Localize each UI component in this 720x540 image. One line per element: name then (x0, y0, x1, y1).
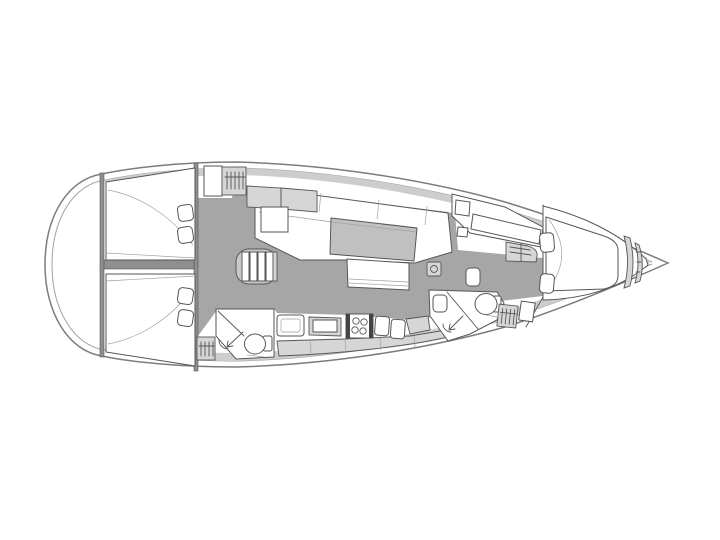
pillow (177, 226, 194, 244)
pillow (539, 273, 555, 293)
step-end-cap (273, 252, 277, 281)
aft-cabin-port (106, 168, 195, 260)
step (258, 252, 265, 281)
yacht-floor-plan (0, 0, 720, 540)
water-heater (466, 268, 480, 286)
pillow (177, 287, 194, 305)
galley (277, 314, 448, 356)
transom-bulkhead (100, 173, 104, 357)
stove-rail (346, 314, 350, 338)
nav-seat (455, 200, 470, 216)
locker-port (204, 166, 222, 196)
mast-post (427, 262, 441, 276)
companionway (236, 249, 277, 284)
pillow (177, 309, 194, 327)
sink (374, 316, 389, 336)
sideboard-door (247, 186, 281, 209)
pillow (539, 232, 555, 252)
hanging-locker-port (222, 167, 246, 195)
counter-panel (313, 320, 337, 332)
stove-icon (346, 314, 373, 338)
pillow (177, 204, 194, 222)
step (266, 252, 273, 281)
step (250, 252, 257, 281)
hanging-locker-starboard-aft (197, 337, 215, 360)
nav-shelf (457, 227, 468, 237)
aft-cabin-divider-wall (104, 260, 194, 269)
sink (390, 319, 405, 339)
aft-cabin-starboard (106, 274, 195, 366)
step (242, 252, 249, 281)
stove-rail (369, 314, 373, 338)
hanging-locker-forward (497, 304, 518, 328)
head-sink (433, 295, 447, 312)
stove-body (346, 314, 373, 338)
side-table (261, 207, 288, 232)
locker-shelf (519, 301, 536, 322)
